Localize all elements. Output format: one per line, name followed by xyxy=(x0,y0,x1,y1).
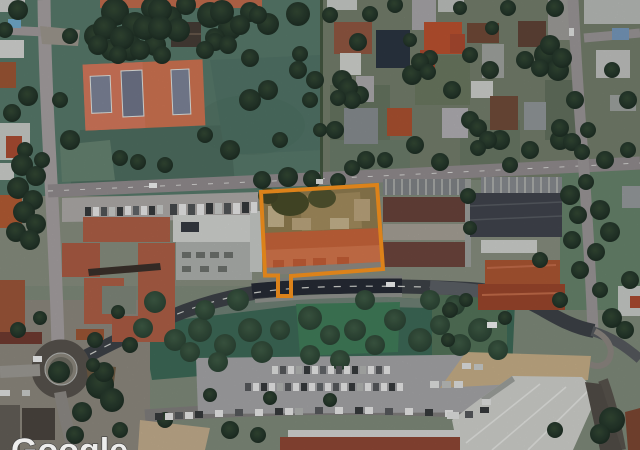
svg-text:Google: Google xyxy=(11,432,128,450)
